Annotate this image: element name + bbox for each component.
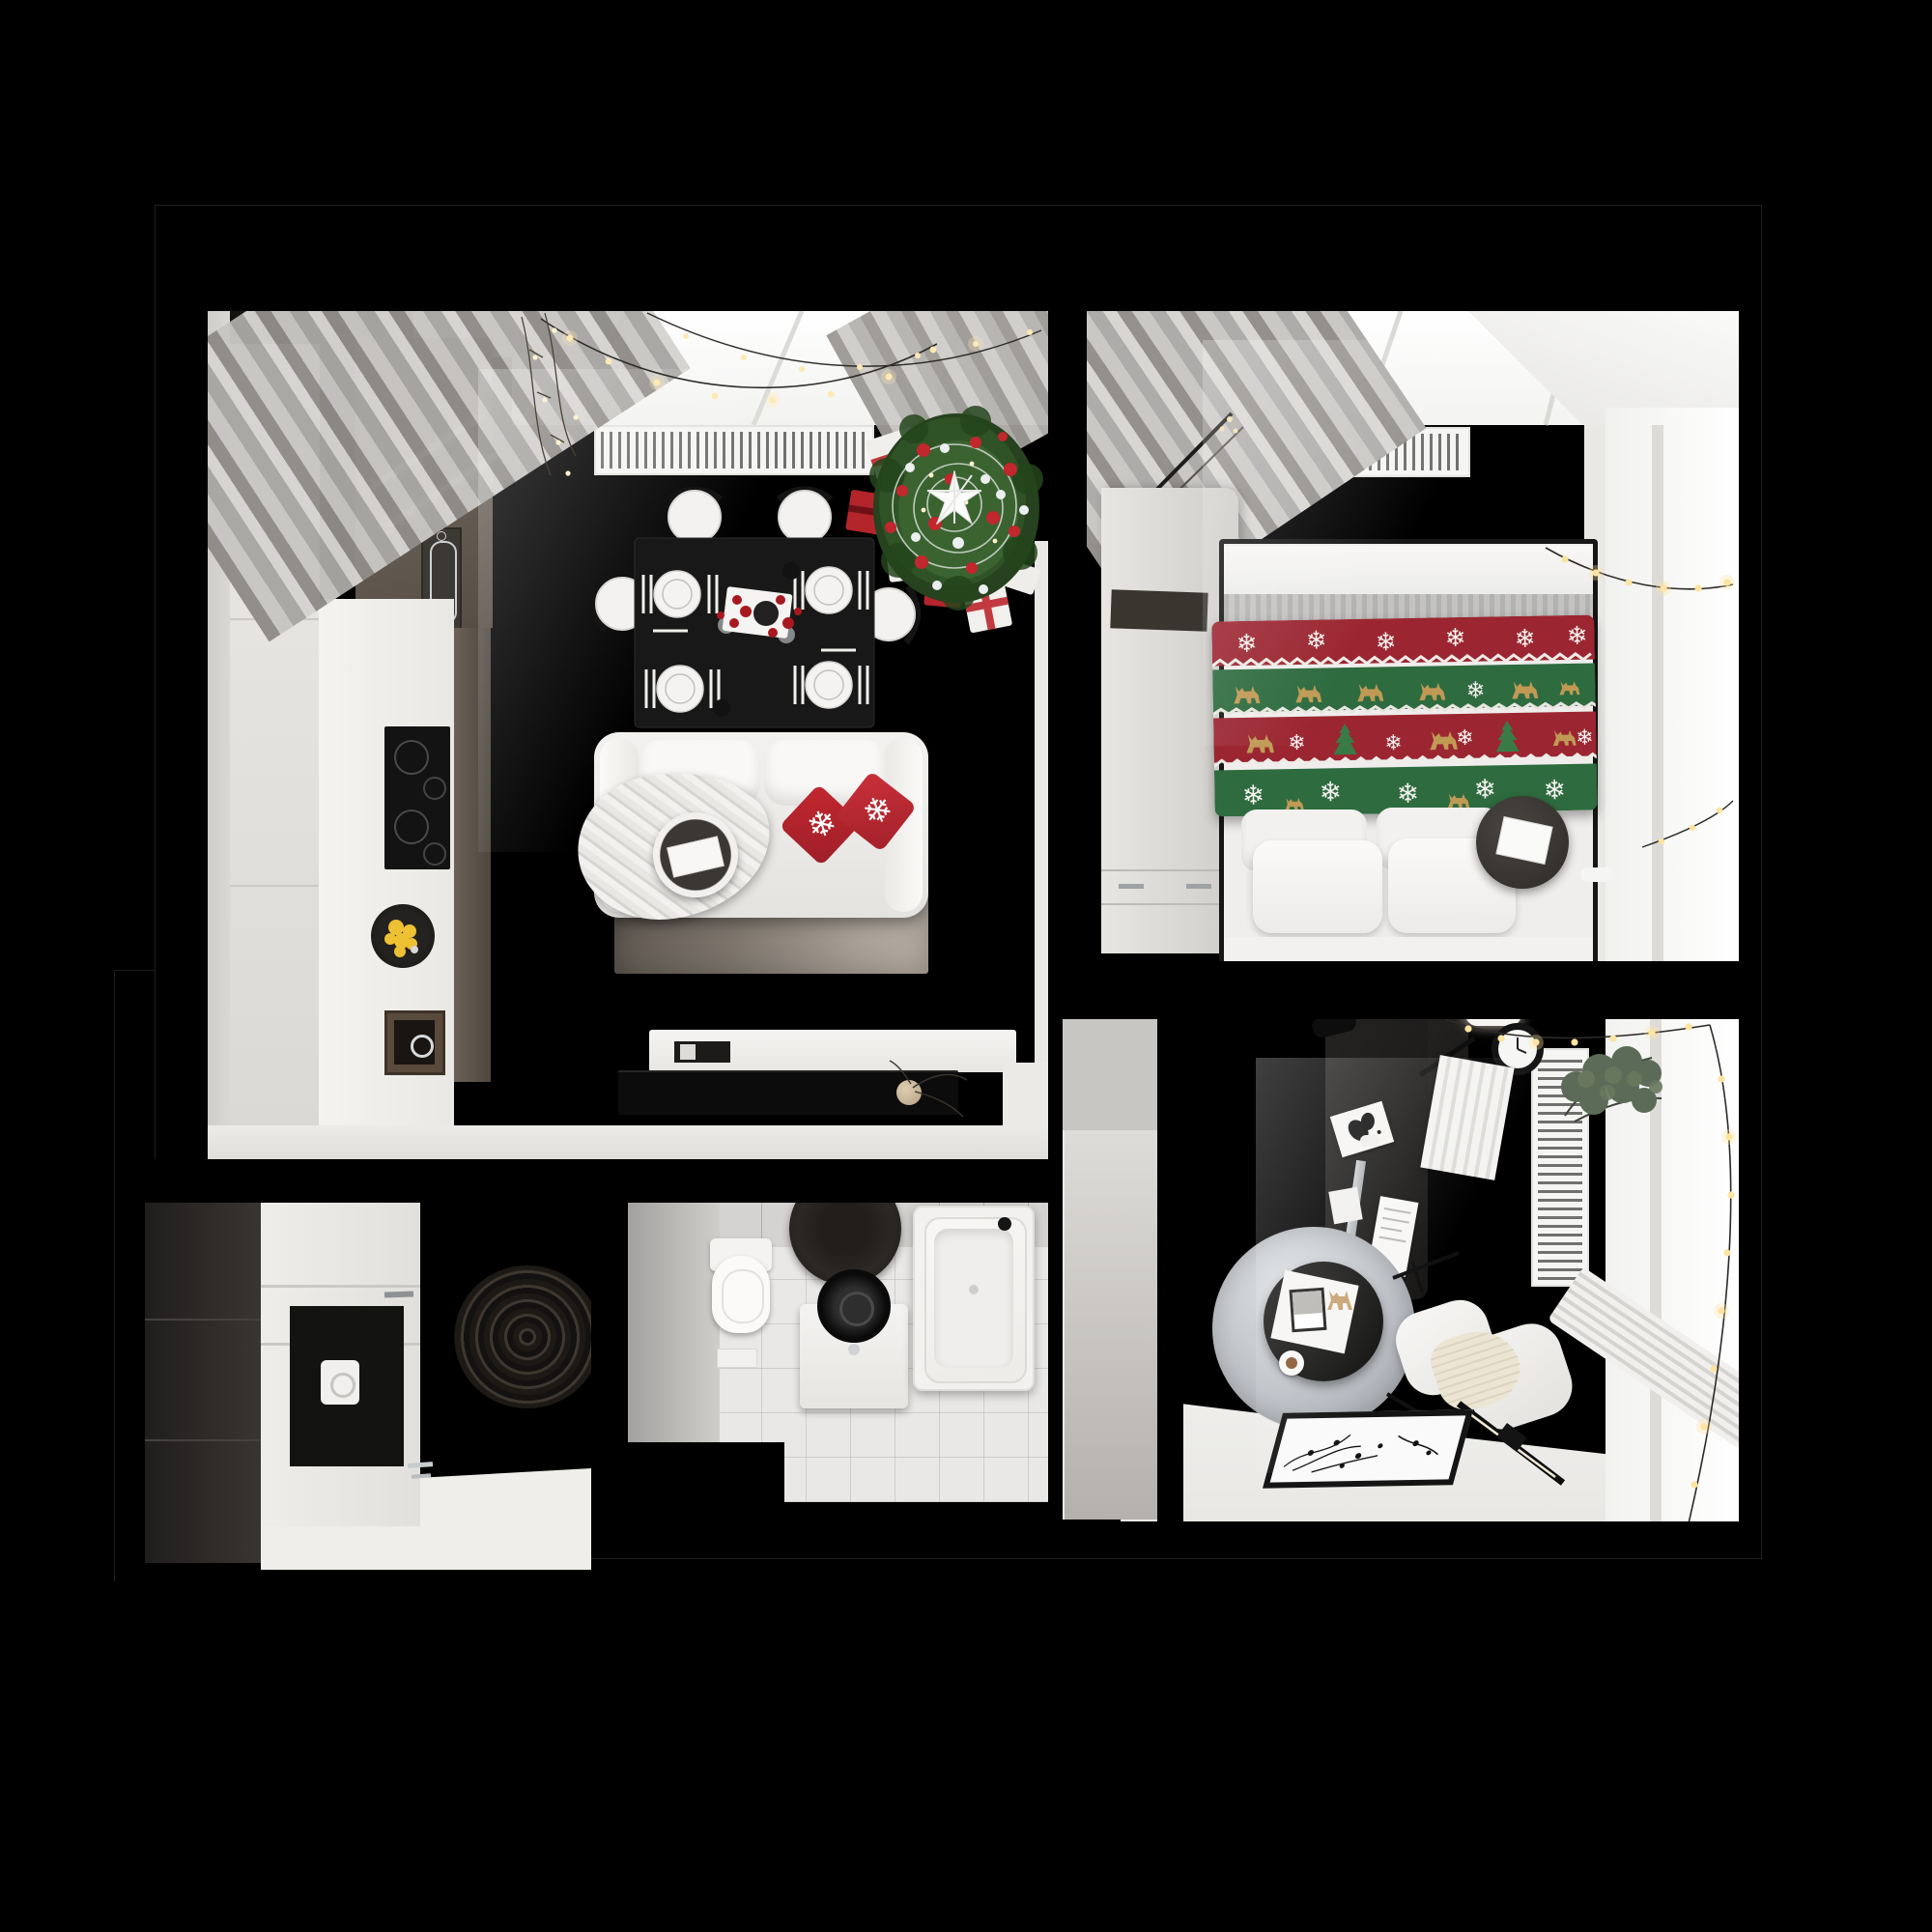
wardrobe-seam <box>145 1319 261 1321</box>
mouse <box>1360 1135 1379 1147</box>
side-stool <box>653 812 738 897</box>
entry-wall-top <box>1063 1019 1157 1130</box>
toilet <box>710 1238 774 1335</box>
room-bedroom: ❄❄❄ ❄❄❄ ❄ ❄❄❄❄ <box>1087 311 1739 961</box>
bed-foot-band <box>1224 937 1593 961</box>
svg-text:❄: ❄ <box>1236 630 1258 659</box>
svg-text:❄: ❄ <box>1319 776 1342 808</box>
fruit-bowl <box>371 904 435 968</box>
drain-icon <box>969 1285 979 1294</box>
wardrobe-seam <box>145 1439 261 1441</box>
flush-plate <box>717 1349 757 1368</box>
burner-icon <box>423 842 446 866</box>
hallway-dresser <box>261 1203 420 1526</box>
wall-entry-office <box>1157 1130 1183 1521</box>
svg-text:❄: ❄ <box>1288 731 1306 755</box>
floor-plan-render: ❄ ❄ <box>0 0 1932 1932</box>
entry-floor <box>1063 1130 1157 1520</box>
burner-icon <box>394 810 429 844</box>
svg-text:❄: ❄ <box>1396 778 1419 810</box>
lemons-icon <box>371 904 435 968</box>
picture-frame <box>1263 1409 1473 1488</box>
drawer-seam <box>1101 869 1238 871</box>
toilet-seat-line <box>722 1269 764 1323</box>
svg-text:❄: ❄ <box>1376 628 1397 657</box>
faucet-icon <box>411 1035 434 1058</box>
pillow <box>1253 840 1382 933</box>
room-hallway <box>145 1203 591 1584</box>
washer-drum <box>817 1269 891 1343</box>
small-frame <box>1290 1288 1327 1332</box>
svg-text:❄: ❄ <box>1241 780 1264 811</box>
wall-black-band-bottom <box>145 1159 1048 1203</box>
shower-head-icon <box>998 1217 1011 1231</box>
photo-frame-icon <box>680 1044 696 1060</box>
bathtub-basin <box>934 1229 1013 1368</box>
book <box>667 836 724 877</box>
svg-text:❄: ❄ <box>1465 677 1486 704</box>
wall-living-bedroom <box>1048 290 1087 961</box>
svg-text:❄: ❄ <box>1456 726 1474 751</box>
induction-cooktop <box>384 726 450 869</box>
svg-text:❄: ❄ <box>1473 773 1496 805</box>
kitchen-sink <box>384 1010 445 1075</box>
svg-text:❄: ❄ <box>1444 624 1465 653</box>
wall-living-bottom <box>208 1125 1048 1159</box>
wardrobe-dark-object <box>1110 589 1207 631</box>
paper-wedge <box>1328 1187 1362 1225</box>
entry-corridor <box>1063 1019 1157 1520</box>
cabinet-seam <box>230 885 319 887</box>
wall-hall-bath <box>591 1203 628 1502</box>
wall-bath-entry <box>1048 1019 1063 1502</box>
coffee-cup <box>1279 1350 1304 1376</box>
hallway-wardrobe <box>145 1203 261 1563</box>
niche-device <box>321 1360 359 1405</box>
room-bathroom <box>628 1203 1048 1502</box>
bathtub <box>913 1206 1035 1391</box>
dresser-niche <box>290 1306 404 1466</box>
coiled-round-rug <box>454 1265 591 1408</box>
deer-figurine-icon <box>1323 1285 1356 1318</box>
burner-icon <box>394 740 429 775</box>
washer-knob-icon <box>848 1344 860 1355</box>
drawer-handle-icon <box>1119 884 1144 889</box>
wall-corner <box>1003 1063 1048 1125</box>
svg-text:❄: ❄ <box>1384 731 1403 755</box>
dresser-handle-icon <box>384 1291 413 1297</box>
room-office <box>1121 1019 1739 1521</box>
burner-icon <box>423 777 446 800</box>
coffee-table <box>1264 1262 1383 1381</box>
oven-knob-icon <box>437 531 446 541</box>
kitchen-side-panel <box>454 628 491 1082</box>
drawer-handle-icon <box>1186 884 1211 889</box>
bedroom-garland-lights <box>1526 528 1739 876</box>
svg-text:❄: ❄ <box>1305 626 1326 655</box>
ornament-twigs-icon <box>884 1055 971 1122</box>
drawer-seam <box>261 1285 420 1288</box>
drawer-seam <box>1101 903 1238 905</box>
living-garland-lights <box>512 311 1053 524</box>
bathroom-floor-notch <box>628 1442 784 1502</box>
linear-floor-lamp <box>1449 1390 1575 1496</box>
wall-bedroom-office <box>1048 961 1739 1019</box>
